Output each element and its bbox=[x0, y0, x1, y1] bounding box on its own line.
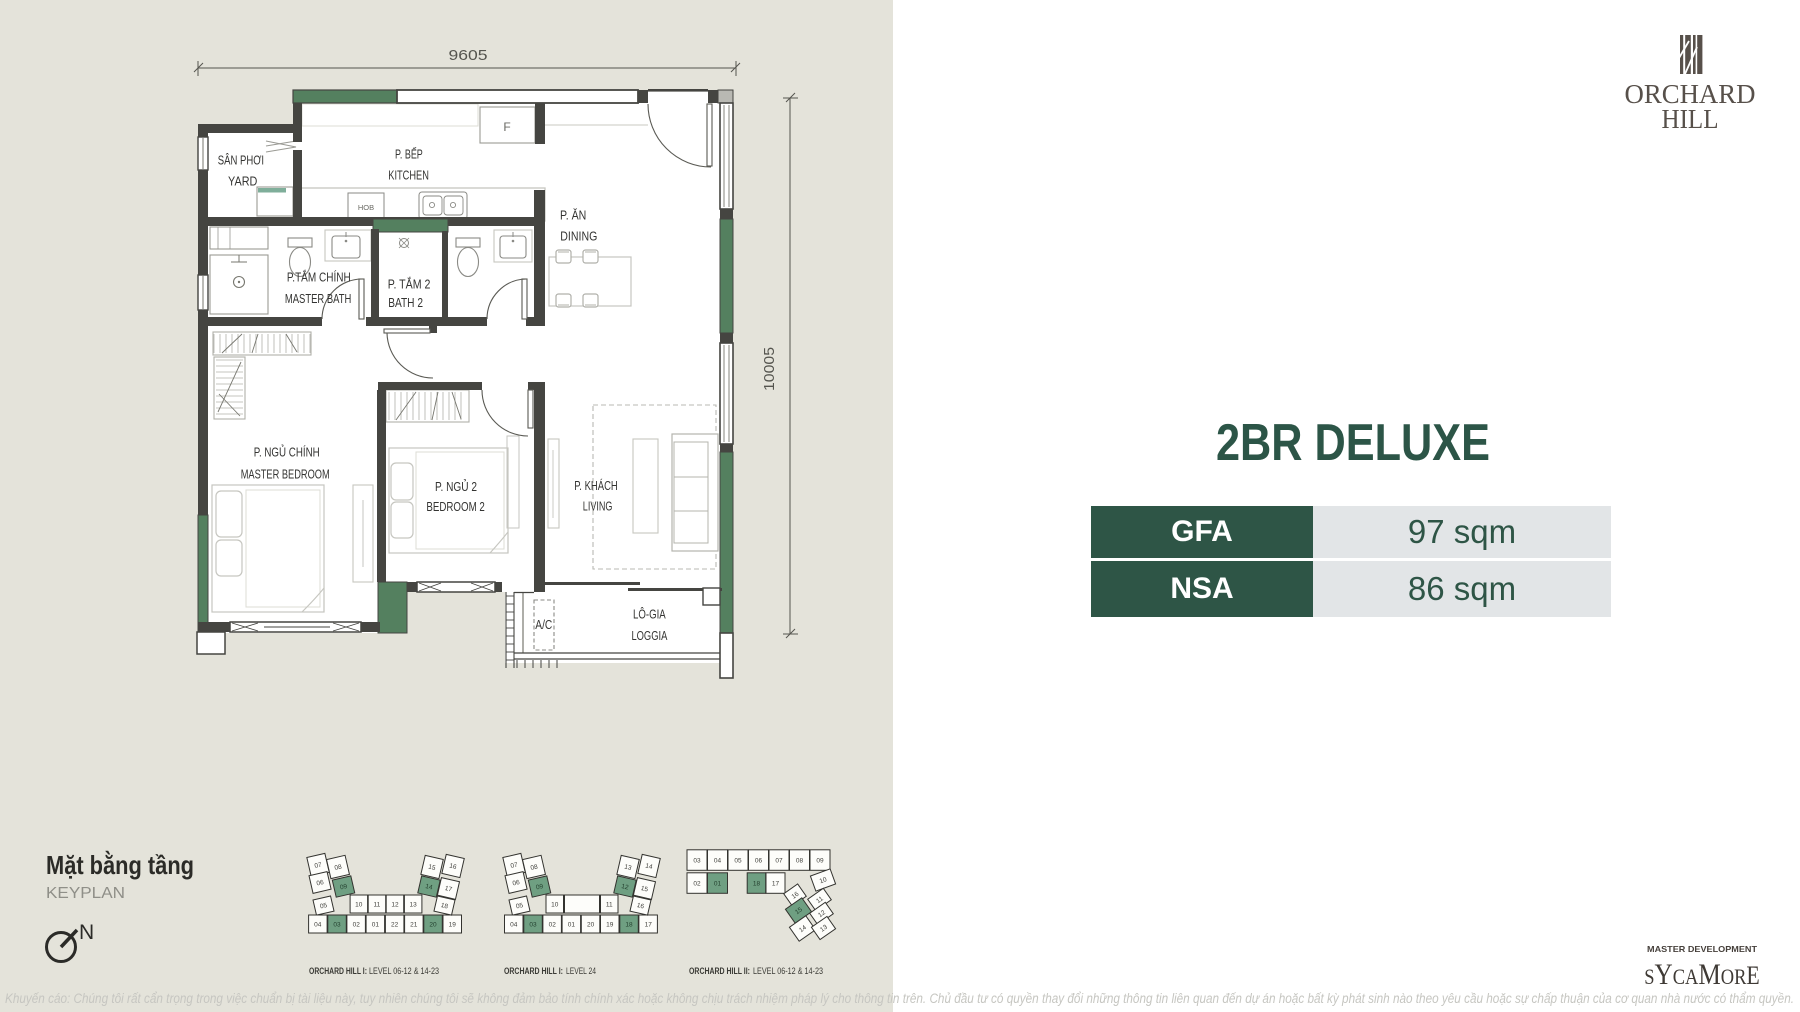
svg-text:HOB: HOB bbox=[358, 203, 374, 212]
svg-text:MASTER DEVELOPMENT: MASTER DEVELOPMENT bbox=[1647, 944, 1758, 954]
svg-text:F: F bbox=[503, 120, 510, 134]
svg-text:05: 05 bbox=[734, 857, 742, 864]
svg-text:17: 17 bbox=[772, 880, 780, 887]
svg-text:10005: 10005 bbox=[761, 347, 778, 391]
svg-text:04: 04 bbox=[714, 857, 722, 864]
svg-text:01: 01 bbox=[372, 921, 380, 928]
svg-text:P.TẮM CHÍNH: P.TẮM CHÍNH bbox=[287, 269, 351, 284]
svg-text:HILL: HILL bbox=[1662, 104, 1719, 134]
svg-text:11: 11 bbox=[374, 901, 381, 908]
svg-text:04: 04 bbox=[510, 921, 518, 928]
svg-text:01: 01 bbox=[714, 880, 722, 887]
svg-text:20: 20 bbox=[429, 921, 437, 928]
svg-text:P. KHÁCH: P. KHÁCH bbox=[574, 478, 618, 493]
svg-text:KITCHEN: KITCHEN bbox=[388, 167, 429, 182]
svg-text:01: 01 bbox=[568, 921, 576, 928]
svg-text:21: 21 bbox=[410, 921, 418, 928]
svg-text:13: 13 bbox=[409, 901, 417, 908]
svg-text:22: 22 bbox=[391, 921, 399, 928]
svg-text:08: 08 bbox=[796, 857, 804, 864]
svg-text:02: 02 bbox=[693, 880, 701, 887]
svg-text:MASTER BATH: MASTER BATH bbox=[285, 291, 352, 306]
svg-text:9605: 9605 bbox=[449, 47, 488, 64]
svg-text:19: 19 bbox=[606, 921, 614, 928]
svg-text:LOGGIA: LOGGIA bbox=[631, 628, 667, 643]
svg-text:DINING: DINING bbox=[560, 228, 597, 243]
svg-text:P. ĂN: P. ĂN bbox=[560, 207, 586, 222]
svg-text:BATH 2: BATH 2 bbox=[388, 295, 423, 310]
svg-text:P. BẾP: P. BẾP bbox=[395, 146, 423, 161]
svg-text:18: 18 bbox=[753, 880, 761, 887]
svg-text:YARD: YARD bbox=[228, 173, 257, 188]
svg-text:10: 10 bbox=[551, 901, 559, 908]
svg-text:2BR DELUXE: 2BR DELUXE bbox=[1216, 414, 1490, 472]
svg-text:SÂN PHƠI: SÂN PHƠI bbox=[218, 152, 264, 167]
svg-text:03: 03 bbox=[333, 921, 341, 928]
svg-text:02: 02 bbox=[549, 921, 557, 928]
svg-text:19: 19 bbox=[449, 921, 457, 928]
svg-text:P. NGỦ CHÍNH: P. NGỦ CHÍNH bbox=[254, 445, 320, 460]
svg-text:N: N bbox=[79, 921, 94, 944]
svg-text:Mặt bằng tầng: Mặt bằng tầng bbox=[46, 850, 194, 880]
svg-text:A/C: A/C bbox=[535, 618, 552, 632]
svg-text:18: 18 bbox=[625, 921, 633, 928]
svg-text:P. NGỦ 2: P. NGỦ 2 bbox=[435, 479, 477, 494]
svg-text:LIVING: LIVING bbox=[583, 498, 613, 513]
svg-text:20: 20 bbox=[587, 921, 595, 928]
svg-text:07: 07 bbox=[775, 857, 783, 864]
svg-text:09: 09 bbox=[816, 857, 824, 864]
svg-text:LÔ-GIA: LÔ-GIA bbox=[633, 607, 666, 622]
svg-text:02: 02 bbox=[353, 921, 361, 928]
svg-text:10: 10 bbox=[355, 901, 363, 908]
svg-text:17: 17 bbox=[645, 921, 653, 928]
svg-text:BEDROOM 2: BEDROOM 2 bbox=[426, 499, 484, 514]
svg-text:Khuyến cáo: Chúng tôi rất cẩn: Khuyến cáo: Chúng tôi rất cẩn trọng tron… bbox=[5, 991, 1794, 1007]
svg-text:MASTER BEDROOM: MASTER BEDROOM bbox=[241, 467, 330, 482]
svg-text:04: 04 bbox=[314, 921, 322, 928]
svg-text:03: 03 bbox=[529, 921, 537, 928]
svg-text:KEYPLAN: KEYPLAN bbox=[46, 885, 125, 902]
svg-text:03: 03 bbox=[693, 857, 701, 864]
svg-text:06: 06 bbox=[755, 857, 763, 864]
svg-text:P. TẮM 2: P. TẮM 2 bbox=[388, 277, 431, 292]
svg-text:12: 12 bbox=[391, 901, 399, 908]
svg-text:11: 11 bbox=[606, 901, 613, 908]
